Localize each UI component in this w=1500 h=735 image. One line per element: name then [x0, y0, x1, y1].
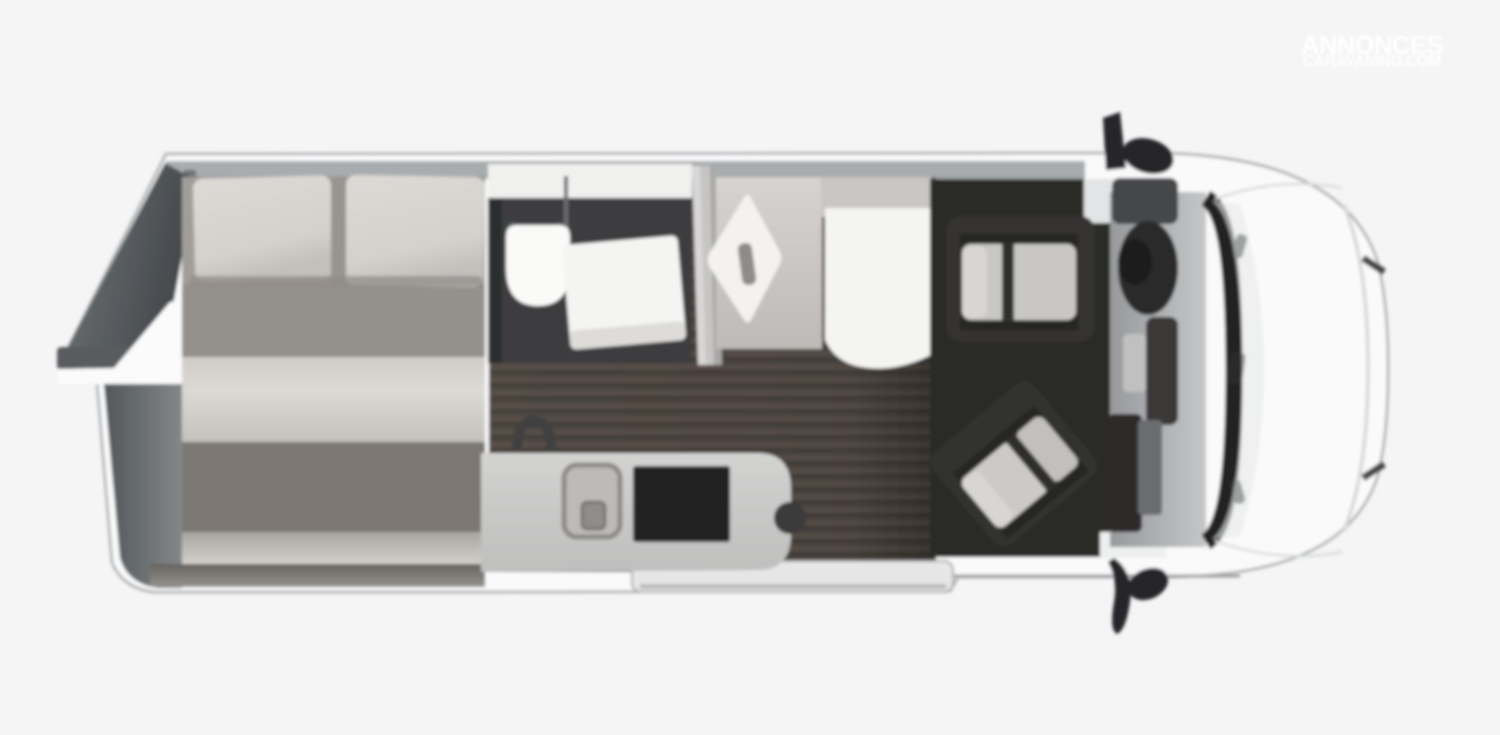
svg-text:CARAVANING.COM: CARAVANING.COM: [1303, 53, 1441, 70]
